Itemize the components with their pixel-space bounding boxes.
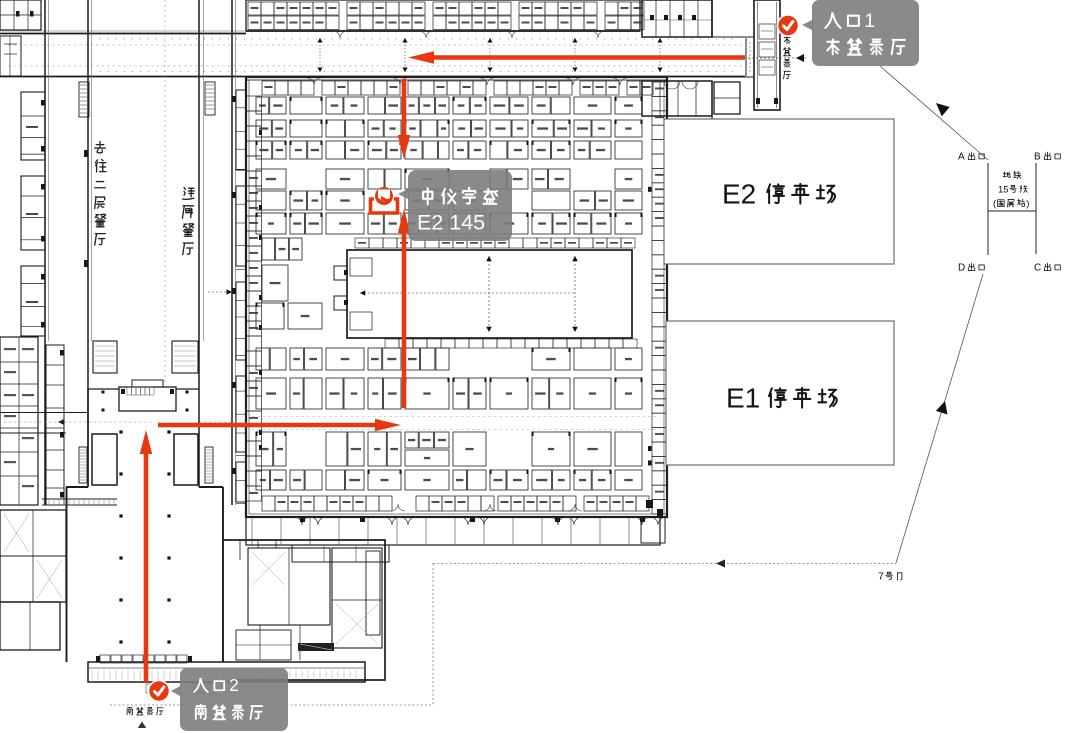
svg-text:): ) [1026, 198, 1029, 209]
svg-text:D: D [958, 263, 965, 274]
svg-text:E2: E2 [722, 178, 756, 209]
svg-text:C: C [1034, 263, 1041, 274]
svg-text:1: 1 [864, 10, 875, 32]
svg-text:2: 2 [229, 675, 239, 695]
svg-text:7: 7 [878, 571, 884, 583]
svg-text:E2 145: E2 145 [417, 211, 485, 235]
svg-text:B: B [1034, 152, 1041, 163]
svg-text:E1: E1 [726, 382, 760, 413]
svg-text:A: A [958, 152, 965, 163]
svg-text:15: 15 [998, 184, 1009, 195]
